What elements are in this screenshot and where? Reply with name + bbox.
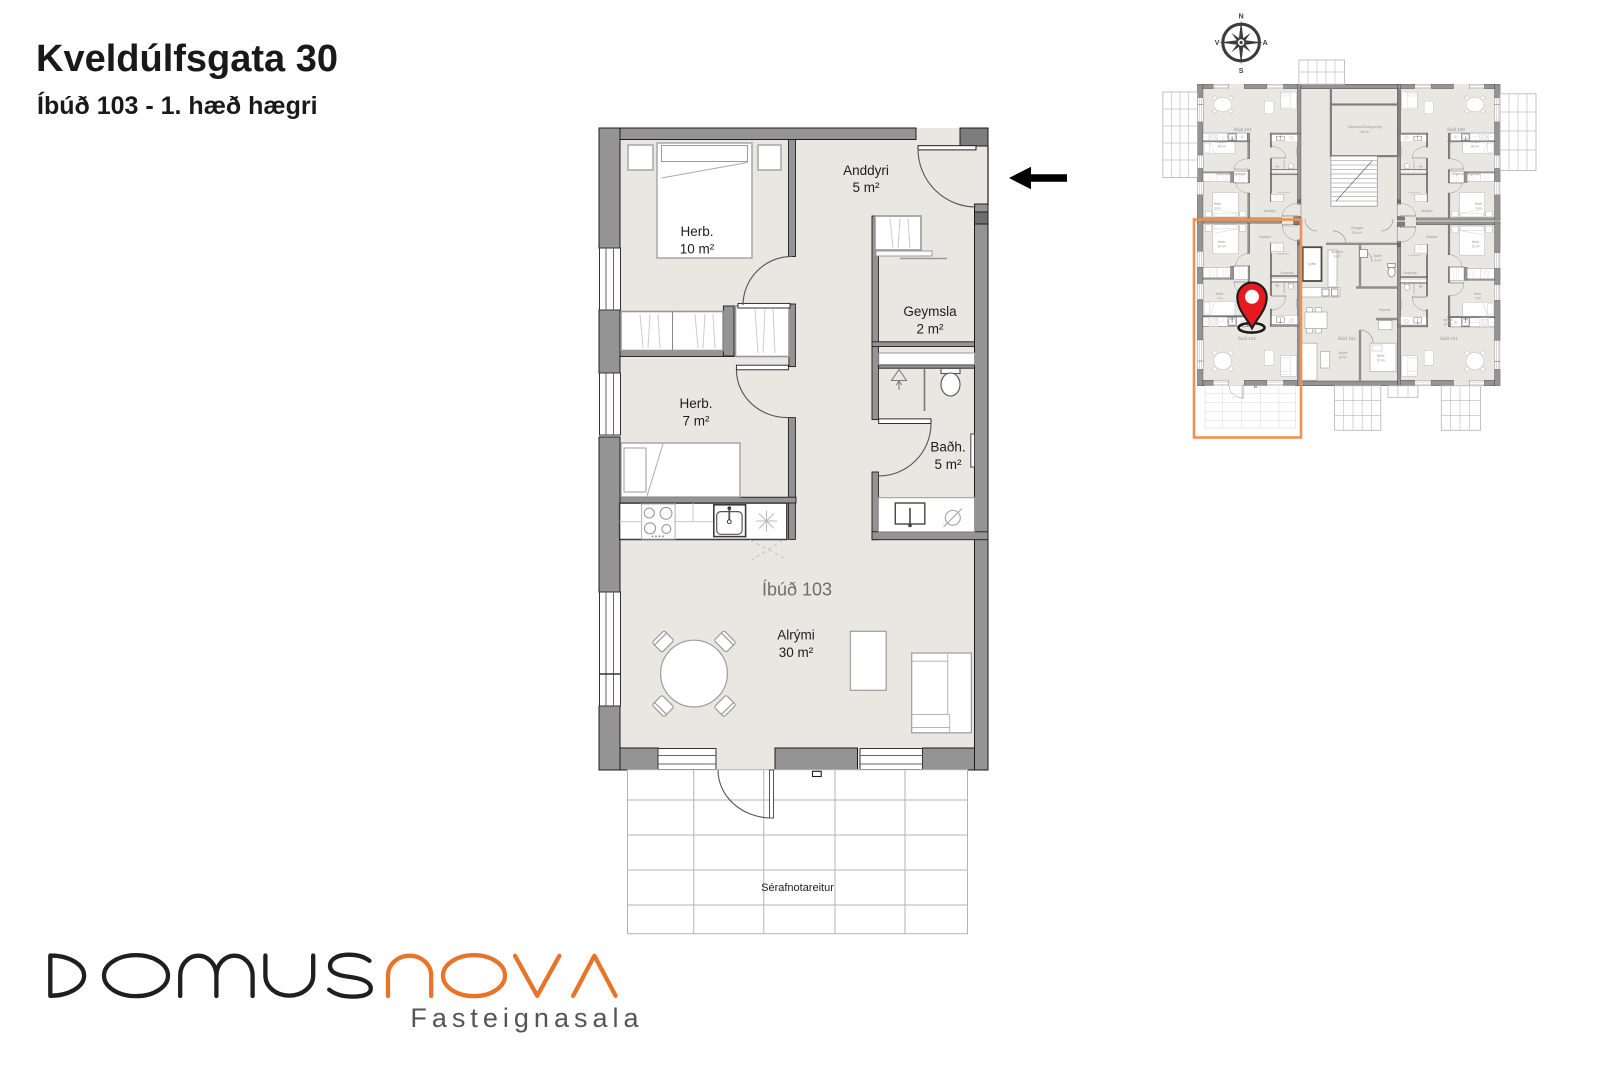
svg-text:16 m²: 16 m² — [1218, 245, 1228, 249]
svg-text:10 m²: 10 m² — [680, 242, 715, 257]
svg-text:Baðh.: Baðh. — [1374, 253, 1383, 258]
svg-text:5 m²: 5 m² — [1375, 259, 1383, 263]
svg-text:S: S — [1239, 68, 1244, 75]
svg-text:Anddyri: Anddyri — [1264, 209, 1276, 213]
svg-text:Alrými: Alrými — [1217, 140, 1227, 144]
svg-text:18 m²: 18 m² — [1360, 130, 1370, 134]
svg-text:10 m²: 10 m² — [1377, 359, 1387, 363]
svg-text:Fasteignasala: Fasteignasala — [410, 1003, 643, 1033]
svg-text:Alrými: Alrými — [1338, 351, 1348, 355]
svg-text:N: N — [1239, 14, 1244, 21]
svg-text:9 m²: 9 m² — [1215, 207, 1223, 211]
svg-text:30 m²: 30 m² — [779, 645, 814, 660]
svg-text:Alrými: Alrými — [1470, 140, 1480, 144]
svg-text:Geymsla: Geymsla — [903, 304, 957, 319]
svg-text:7 m²: 7 m² — [1217, 297, 1225, 301]
svg-text:Herb.: Herb. — [1474, 292, 1482, 296]
svg-text:7 m²: 7 m² — [1475, 297, 1483, 301]
svg-text:Herb.: Herb. — [1475, 202, 1483, 206]
svg-text:Sérafnotareitur: Sérafnotareitur — [761, 882, 834, 894]
svg-text:Herb.: Herb. — [1377, 354, 1385, 358]
svg-text:A: A — [1263, 40, 1268, 47]
svg-text:Herb.: Herb. — [679, 396, 712, 411]
svg-text:Íbúð 103: Íbúð 103 — [1238, 335, 1256, 341]
svg-text:Íbúð 101: Íbúð 101 — [1440, 335, 1458, 341]
svg-text:Geymsl.: Geymsl. — [1379, 308, 1391, 312]
svg-text:Anddyri: Anddyri — [1421, 209, 1433, 213]
svg-text:26 m²: 26 m² — [1218, 145, 1228, 149]
svg-text:Alrými: Alrými — [777, 628, 815, 643]
svg-text:7 m²: 7 m² — [683, 414, 711, 429]
svg-text:Íbúð 103: Íbúð 103 — [1447, 126, 1465, 132]
svg-text:Herb.: Herb. — [1214, 202, 1222, 206]
svg-text:26 m²: 26 m² — [1352, 231, 1362, 235]
svg-text:Lyfta: Lyfta — [1308, 262, 1317, 266]
svg-text:Herb.: Herb. — [1216, 292, 1224, 296]
svg-text:Anddyri: Anddyri — [1426, 235, 1438, 239]
svg-text:Íbúð 103: Íbúð 103 — [762, 580, 832, 600]
svg-text:5 m²: 5 m² — [935, 457, 963, 472]
svg-text:Herb.: Herb. — [1218, 240, 1226, 244]
svg-text:Alrými: Alrými — [1443, 318, 1453, 322]
svg-text:Anddyri: Anddyri — [1331, 250, 1343, 254]
svg-text:Gangur: Gangur — [1351, 226, 1364, 230]
svg-text:Geymsla: Geymsla — [1280, 271, 1293, 275]
svg-text:Tæknirými/Gangveign: Tæknirými/Gangveign — [1347, 125, 1381, 129]
svg-text:Herb.: Herb. — [680, 224, 713, 239]
svg-text:Íbúð 102: Íbúð 102 — [1338, 335, 1356, 341]
svg-text:Íbúð 104: Íbúð 104 — [1234, 126, 1252, 132]
svg-text:2 m²: 2 m² — [917, 322, 945, 337]
svg-text:Herb.: Herb. — [1472, 240, 1480, 244]
svg-text:29 m²: 29 m² — [1339, 356, 1349, 360]
svg-text:Geymsla/Inngangur: Geymsla/Inngangur — [1451, 172, 1481, 176]
svg-text:Anddyri: Anddyri — [1259, 235, 1271, 239]
svg-text:6 m²: 6 m² — [1334, 255, 1342, 259]
svg-text:12 m²: 12 m² — [1472, 245, 1482, 249]
svg-text:Geymsla/Inngangur: Geymsla/Inngangur — [1216, 172, 1246, 176]
svg-text:Baðh.: Baðh. — [930, 440, 965, 455]
svg-text:Anddyri: Anddyri — [843, 163, 889, 178]
svg-text:26 m²: 26 m² — [1471, 145, 1481, 149]
svg-text:9 m²: 9 m² — [1476, 207, 1484, 211]
svg-text:5 m²: 5 m² — [853, 180, 881, 195]
svg-text:20 m²: 20 m² — [1444, 323, 1454, 327]
svg-text:V: V — [1215, 40, 1220, 47]
svg-text:Geymsla: Geymsla — [1403, 271, 1416, 275]
